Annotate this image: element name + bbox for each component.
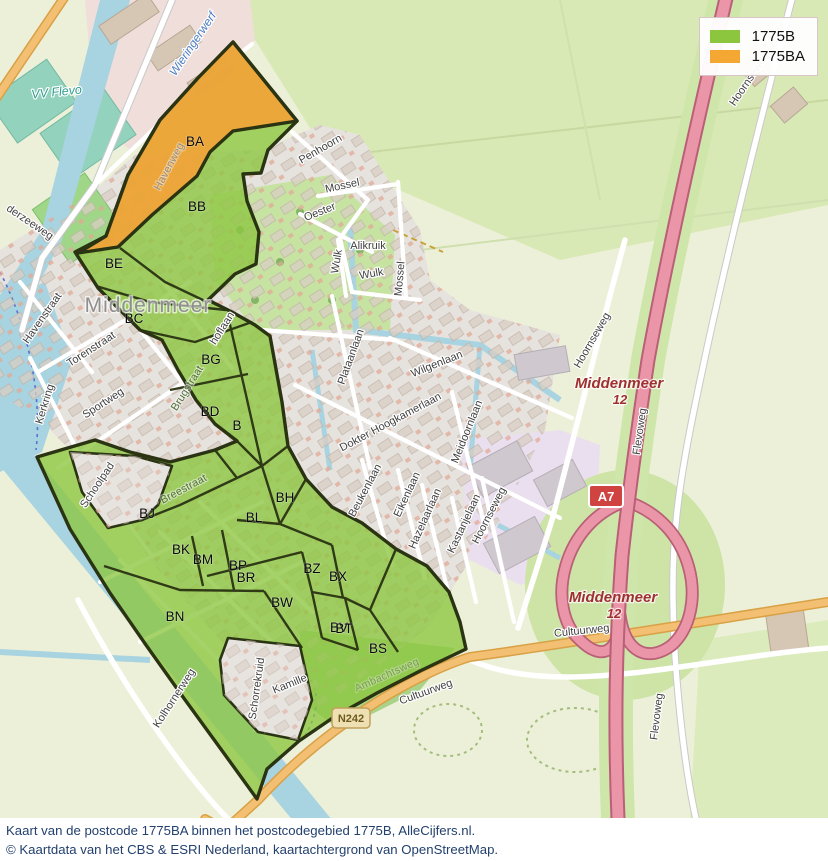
svg-text:A7: A7 — [598, 489, 615, 504]
map-caption: Kaart van de postcode 1775BA binnen het … — [0, 818, 828, 861]
region-label-bs: BS — [369, 641, 387, 656]
region-label-bl: BL — [246, 510, 263, 525]
legend-row-1775b: 1775B — [710, 28, 805, 45]
legend-row-1775ba: 1775BA — [710, 48, 805, 65]
exit-label-number-2: 12 — [607, 606, 622, 621]
region-label-ba: BA — [186, 134, 204, 149]
region-label-bx: BX — [329, 569, 347, 584]
caption-line-1: Kaart van de postcode 1775BA binnen het … — [6, 821, 828, 840]
region-label-be: BE — [105, 256, 123, 271]
region-label-b: B — [232, 418, 241, 433]
a7-shield: A7 — [589, 485, 623, 507]
region-label-bk: BK — [172, 542, 190, 557]
region-label-bb: BB — [188, 199, 206, 214]
street-label-alikruik: Alikruik — [350, 240, 386, 252]
legend-swatch-orange — [710, 50, 740, 63]
region-label-bc: BC — [125, 311, 144, 326]
region-label-bm: BM — [193, 552, 213, 567]
region-label-bg: BG — [201, 352, 221, 367]
exit-label-number-1: 12 — [613, 392, 628, 407]
place-label-middenmeer: Middenmeer — [85, 294, 212, 317]
region-label-bj: BJ — [139, 506, 155, 521]
region-label-bn: BN — [166, 609, 185, 624]
region-label-bz: BZ — [303, 561, 320, 576]
legend-swatch-green — [710, 30, 740, 43]
region-label-br: BR — [237, 570, 256, 585]
map-legend: 1775B 1775BA — [699, 17, 818, 76]
legend-label-1775b: 1775B — [752, 28, 795, 45]
exit-label-name-1: Middenmeer — [575, 375, 665, 392]
region-label-bd: BD — [201, 404, 220, 419]
postcode-map-page: Wieringerwerf VV Flevo derzeeweg Havenst… — [0, 0, 828, 861]
exit-label-name-2: Middenmeer — [569, 589, 659, 606]
svg-text:N242: N242 — [338, 713, 364, 725]
n242-shield: N242 — [332, 708, 370, 728]
map-canvas: Wieringerwerf VV Flevo derzeeweg Havenst… — [0, 0, 828, 819]
region-label-bh: BH — [276, 490, 295, 505]
region-label-bt: BT — [335, 621, 352, 636]
legend-label-1775ba: 1775BA — [752, 48, 805, 65]
caption-line-2: © Kaartdata van het CBS & ESRI Nederland… — [6, 840, 828, 859]
region-label-bw: BW — [271, 595, 293, 610]
